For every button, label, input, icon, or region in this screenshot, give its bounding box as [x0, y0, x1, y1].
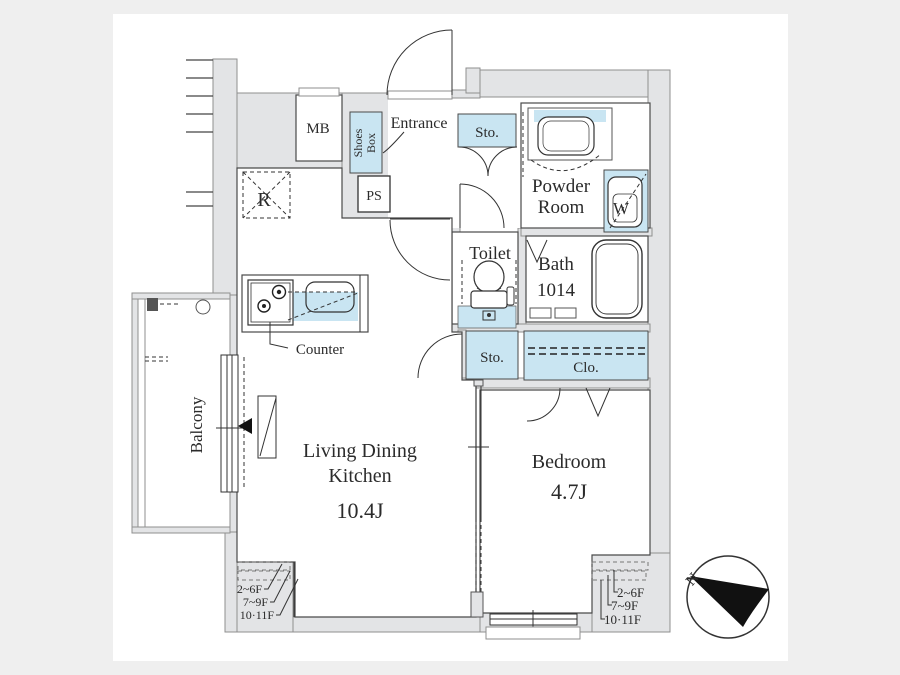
label-bedroom: Bedroom	[532, 451, 607, 473]
door-leaf-panel	[258, 396, 276, 458]
label-balcony: Balcony	[187, 396, 206, 453]
label-bath-1: Bath	[538, 254, 574, 275]
label-fridge: R	[257, 189, 271, 211]
label-toilet: Toilet	[469, 243, 511, 263]
label-counter: Counter	[296, 342, 344, 358]
svg-text:Shoes: Shoes	[351, 128, 365, 157]
ldk-floor	[237, 168, 476, 617]
label-ldk-1: Living Dining	[303, 440, 417, 462]
label-ldk-size: 10.4J	[336, 498, 384, 523]
floorplan-drawing: N MB Shoes Box Entrance PS R Sto. Powder…	[0, 0, 900, 675]
hall-floor	[452, 147, 521, 228]
label-entrance: Entrance	[391, 115, 448, 132]
label-ldk-2: Kitchen	[328, 465, 391, 487]
label-ps: PS	[366, 189, 382, 204]
label-storage-top: Sto.	[475, 125, 499, 141]
label-powder-1: Powder	[532, 176, 591, 197]
label-floors-left-1: 2~6F	[237, 582, 262, 596]
label-floors-left-2: 7~9F	[243, 595, 268, 609]
floorplan-canvas: N MB Shoes Box Entrance PS R Sto. Powder…	[0, 0, 900, 675]
bedroom-window	[486, 610, 580, 639]
label-floors-right-3: 10·11F	[604, 612, 641, 627]
toilet-mat	[458, 306, 516, 328]
label-closet: Clo.	[573, 360, 598, 376]
stove	[248, 280, 293, 325]
drain-icon	[196, 300, 210, 314]
mb-door	[299, 88, 339, 96]
balcony-floor	[138, 299, 230, 527]
svg-text:Box: Box	[364, 133, 378, 153]
entrance-sill	[388, 91, 452, 99]
label-bath-2: 1014	[537, 280, 576, 301]
label-washer: W	[613, 199, 630, 218]
label-bedroom-size: 4.7J	[551, 479, 588, 504]
label-storage-mid: Sto.	[480, 350, 504, 366]
partition-board-icon	[147, 298, 158, 311]
label-mb: MB	[306, 121, 329, 137]
label-floors-right-2: 7~9F	[611, 598, 638, 613]
label-powder-2: Room	[538, 197, 585, 218]
label-floors-left-3: 10·11F	[240, 608, 275, 622]
